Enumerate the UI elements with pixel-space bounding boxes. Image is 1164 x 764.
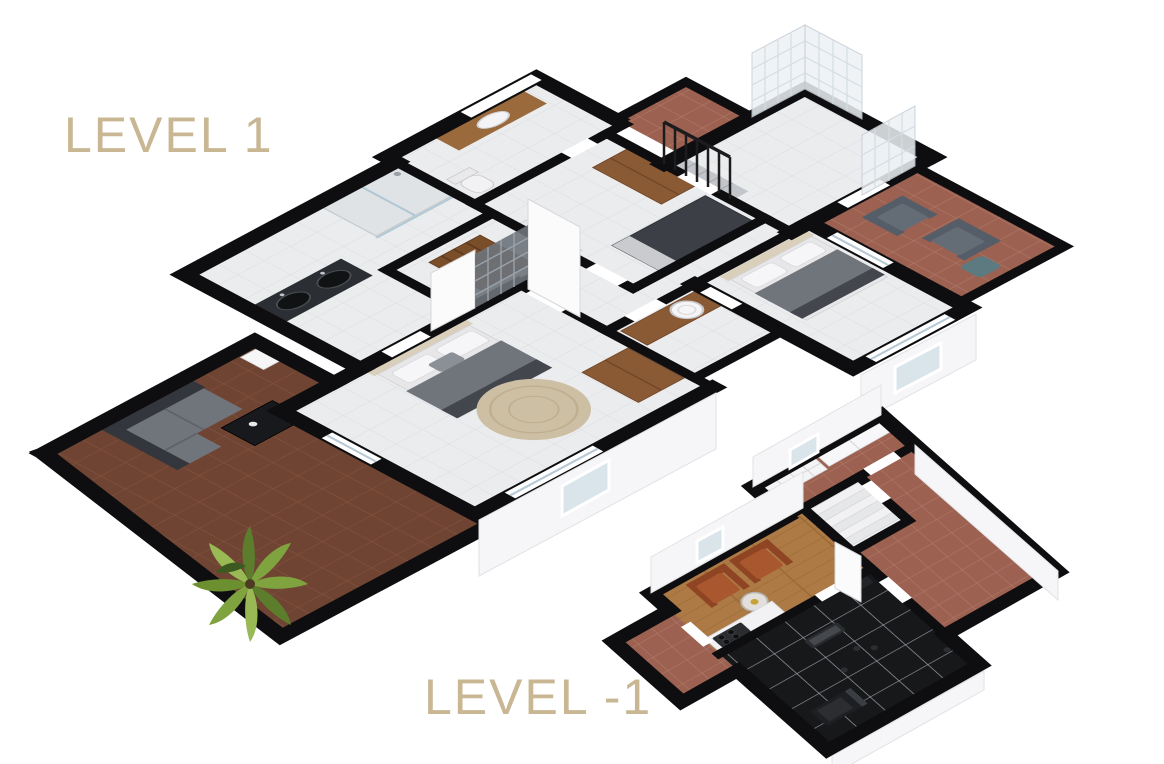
floor-plan-canvas: LEVEL 1 LEVEL -1: [0, 0, 1164, 764]
level1-label: LEVEL 1: [64, 110, 274, 160]
level-minus1-label: LEVEL -1: [424, 672, 652, 722]
palm-plant: [192, 526, 308, 642]
